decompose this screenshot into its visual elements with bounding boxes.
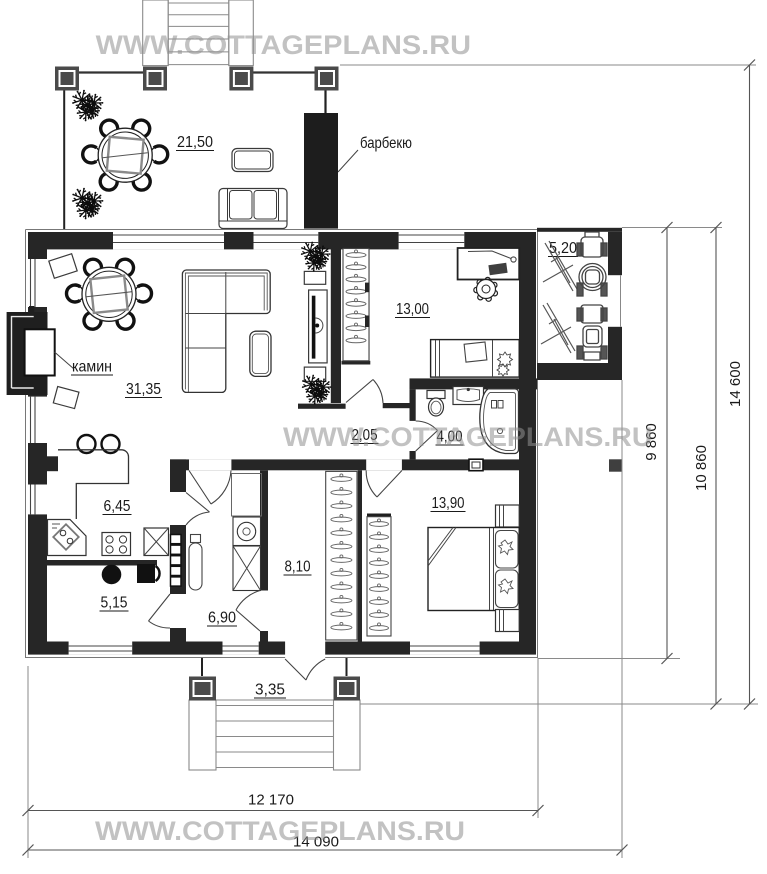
svg-text:3,35: 3,35 — [255, 682, 285, 699]
svg-text:WWW.COTTAGEPLANS.RU: WWW.COTTAGEPLANS.RU — [283, 422, 652, 452]
svg-text:камин: камин — [72, 359, 112, 376]
svg-text:6,45: 6,45 — [104, 498, 131, 515]
svg-text:WWW.COTTAGEPLANS.RU: WWW.COTTAGEPLANS.RU — [95, 816, 465, 846]
svg-text:6,90: 6,90 — [208, 610, 236, 627]
svg-text:13,00: 13,00 — [396, 301, 429, 318]
svg-text:барбекю: барбекю — [360, 135, 412, 152]
svg-text:5,15: 5,15 — [101, 595, 128, 612]
svg-text:21,50: 21,50 — [177, 134, 213, 151]
svg-text:12 170: 12 170 — [248, 792, 294, 809]
svg-text:13,90: 13,90 — [432, 495, 465, 512]
svg-text:14 600: 14 600 — [727, 361, 744, 407]
svg-text:WWW.COTTAGEPLANS.RU: WWW.COTTAGEPLANS.RU — [96, 30, 471, 60]
svg-text:10 860: 10 860 — [693, 445, 710, 491]
svg-text:8,10: 8,10 — [285, 559, 311, 576]
svg-text:31,35: 31,35 — [126, 381, 161, 398]
